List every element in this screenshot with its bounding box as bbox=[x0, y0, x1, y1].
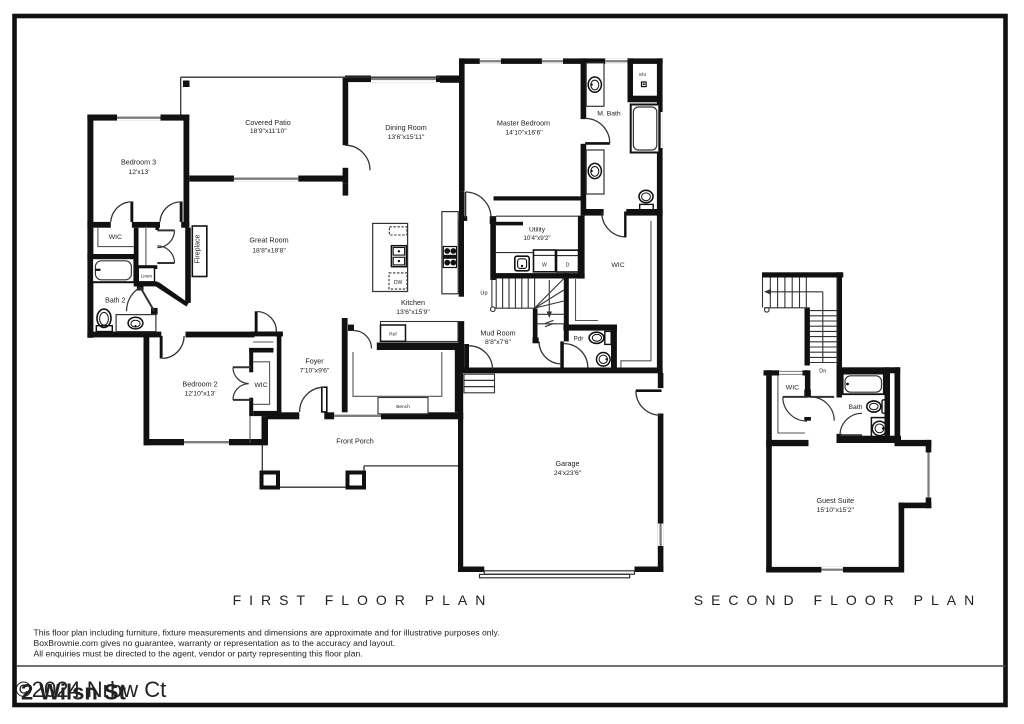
svg-text:Kitchen: Kitchen bbox=[401, 298, 425, 307]
svg-text:18'9"x11'10": 18'9"x11'10" bbox=[250, 128, 287, 135]
svg-text:Front Porch: Front Porch bbox=[336, 436, 374, 445]
svg-text:Garage: Garage bbox=[556, 459, 580, 468]
svg-text:Ref: Ref bbox=[389, 332, 397, 338]
svg-text:Bench: Bench bbox=[396, 404, 410, 410]
svg-text:24'x23'6": 24'x23'6" bbox=[554, 470, 582, 477]
svg-text:Guest Suite: Guest Suite bbox=[817, 496, 855, 505]
svg-text:Dn: Dn bbox=[819, 369, 826, 375]
svg-text:Shr: Shr bbox=[639, 72, 647, 78]
svg-text:Covered Patio: Covered Patio bbox=[245, 118, 291, 127]
svg-text:Up: Up bbox=[480, 291, 487, 297]
svg-text:8'8"x7'6": 8'8"x7'6" bbox=[485, 339, 512, 346]
svg-text:All enquiries must be directed: All enquiries must be directed to the ag… bbox=[34, 649, 363, 659]
svg-text:DW: DW bbox=[394, 280, 403, 286]
svg-text:Utility: Utility bbox=[529, 227, 546, 234]
svg-text:Bedroom 3: Bedroom 3 bbox=[121, 158, 156, 167]
svg-text:WIC: WIC bbox=[611, 262, 624, 269]
svg-text:12'x13': 12'x13' bbox=[128, 169, 149, 176]
svg-text:Linen: Linen bbox=[141, 273, 153, 278]
svg-text:12'10"x13': 12'10"x13' bbox=[184, 391, 215, 398]
svg-text:18'8"x18'8": 18'8"x18'8" bbox=[252, 248, 286, 255]
svg-text:Foyer: Foyer bbox=[305, 357, 324, 366]
svg-text:13'6"x15'9": 13'6"x15'9" bbox=[396, 309, 430, 316]
svg-text:7'10"x9'6": 7'10"x9'6" bbox=[300, 367, 330, 374]
svg-text:This floor plan including furn: This floor plan including furniture, fix… bbox=[34, 628, 500, 638]
svg-text:WIC: WIC bbox=[786, 385, 799, 392]
svg-text:Bath: Bath bbox=[849, 404, 863, 411]
svg-text:Dining Room: Dining Room bbox=[385, 123, 427, 132]
svg-text:BoxBrownie.com gives no guaran: BoxBrownie.com gives no guarantee, warra… bbox=[34, 638, 396, 648]
svg-text:M. Bath: M. Bath bbox=[597, 111, 621, 118]
svg-text:15'10"x15'2": 15'10"x15'2" bbox=[817, 507, 855, 514]
svg-text:FIRST FLOOR PLAN: FIRST FLOOR PLAN bbox=[233, 592, 494, 608]
svg-text:Bath 2: Bath 2 bbox=[105, 298, 125, 305]
svg-text:Pdr: Pdr bbox=[574, 335, 584, 342]
svg-text:10'4"x9'2": 10'4"x9'2" bbox=[523, 235, 550, 242]
svg-text:Master Bedroom: Master Bedroom bbox=[497, 119, 550, 128]
svg-text:2 Wilsn St: 2 Wilsn St bbox=[21, 680, 127, 705]
svg-text:SECOND FLOOR PLAN: SECOND FLOOR PLAN bbox=[694, 592, 982, 608]
svg-text:WIC: WIC bbox=[254, 382, 267, 389]
svg-text:W: W bbox=[542, 262, 547, 268]
svg-text:14'10"x16'6": 14'10"x16'6" bbox=[505, 130, 543, 137]
svg-text:Fireplace: Fireplace bbox=[195, 235, 202, 264]
svg-text:WIC: WIC bbox=[109, 234, 122, 241]
svg-text:Bedroom 2: Bedroom 2 bbox=[182, 380, 217, 389]
svg-text:13'6"x15'11": 13'6"x15'11" bbox=[388, 134, 425, 141]
svg-text:Great Room: Great Room bbox=[249, 236, 288, 245]
svg-text:D: D bbox=[566, 263, 570, 269]
svg-text:Mud Room: Mud Room bbox=[480, 328, 515, 337]
